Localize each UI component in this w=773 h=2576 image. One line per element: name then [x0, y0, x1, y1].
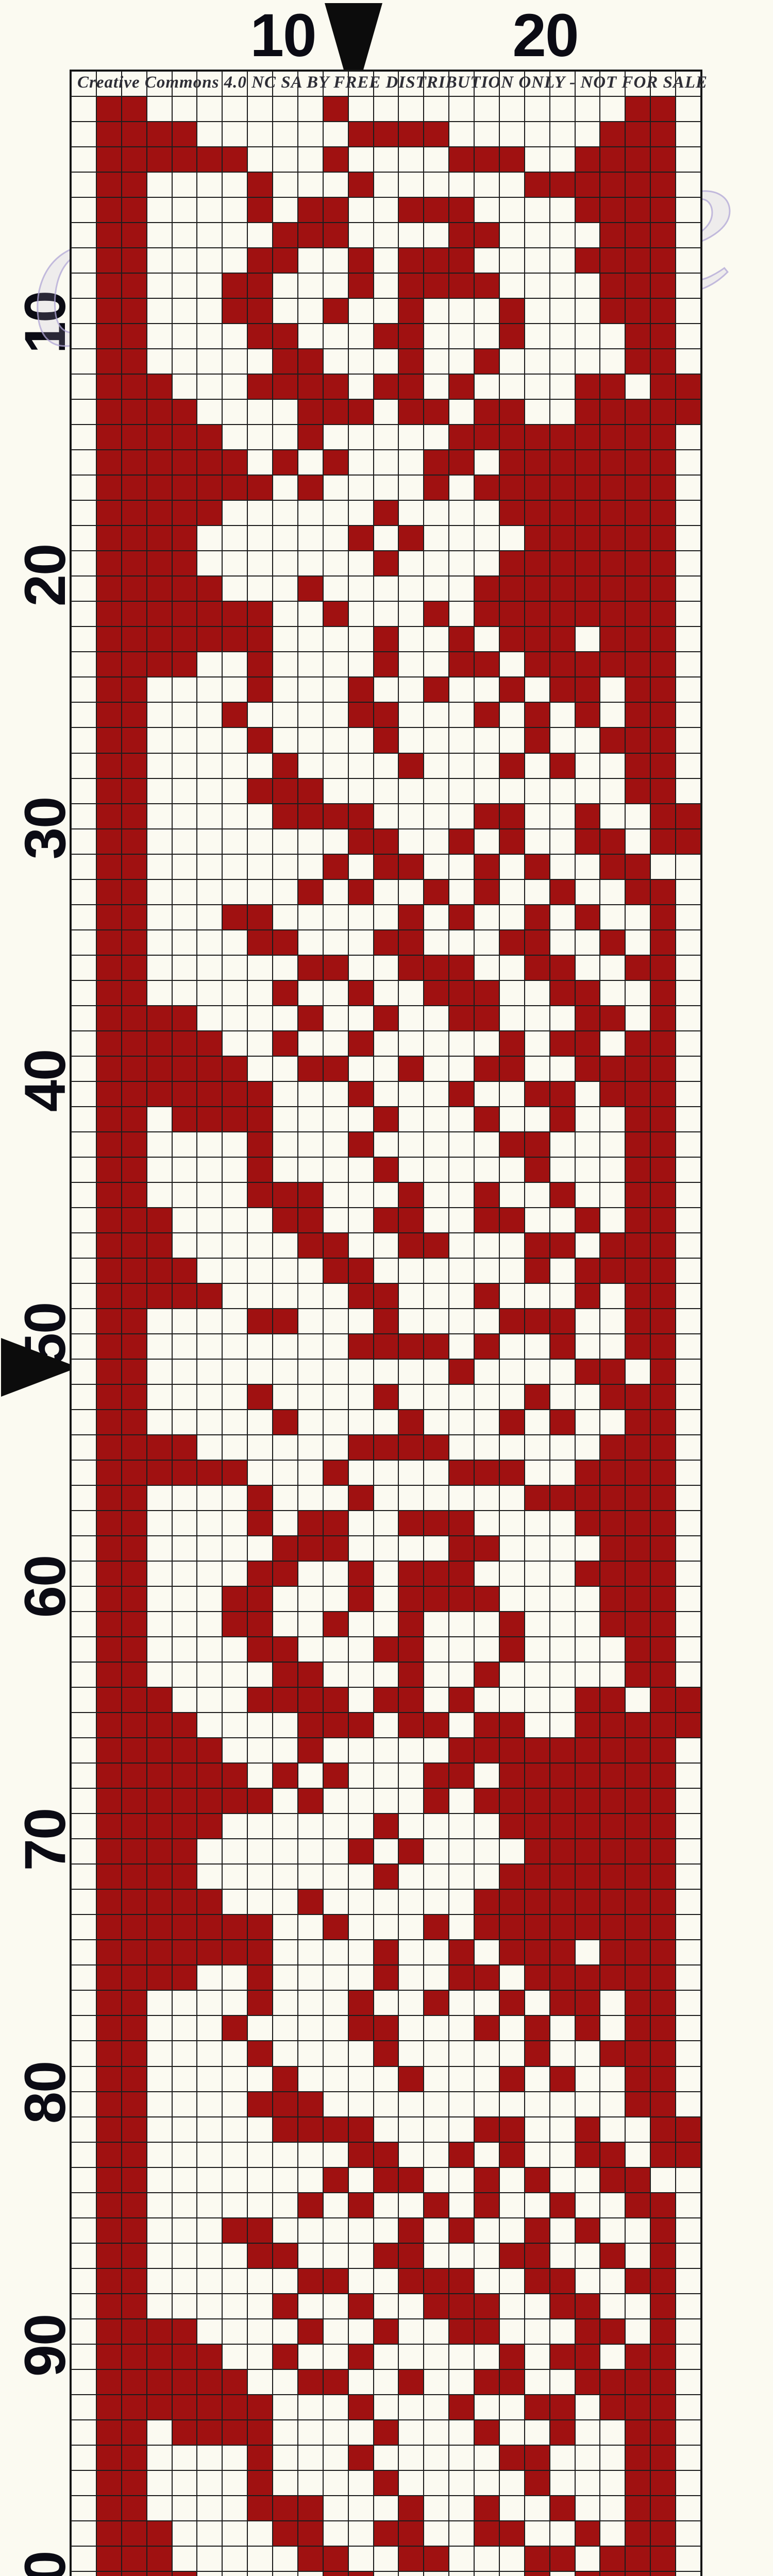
stitch-cell-r17-c14 — [398, 475, 424, 500]
stitch-cell-r86-c21 — [575, 2218, 600, 2243]
stitch-cell-r78-c17 — [474, 2015, 499, 2041]
stitch-cell-r98-c9 — [273, 2521, 298, 2546]
stitch-cell-r86-c17 — [474, 2218, 499, 2243]
stitch-cell-r100-c21 — [575, 2571, 600, 2576]
stitch-cell-r40-c3 — [122, 1056, 147, 1081]
stitch-cell-r37-c15 — [424, 980, 449, 1006]
stitch-cell-r89-c3 — [122, 2294, 147, 2319]
stitch-cell-r65-c20 — [550, 1687, 575, 1713]
stitch-cell-r61-c10 — [298, 1586, 323, 1612]
stitch-cell-r27-c19 — [525, 727, 550, 753]
stitch-cell-r20-c1 — [71, 551, 96, 576]
stitch-cell-r34-c19 — [525, 905, 550, 930]
stitch-cell-r10-c5 — [172, 298, 197, 324]
stitch-cell-r74-c18 — [499, 1914, 525, 1940]
stitch-cell-r19-c23 — [625, 526, 650, 551]
stitch-cell-r54-c21 — [575, 1410, 600, 1435]
stitch-cell-r44-c10 — [298, 1157, 323, 1182]
stitch-cell-r70-c15 — [424, 1814, 449, 1839]
stitch-cell-r21-c1 — [71, 576, 96, 601]
stitch-cell-r15-c2 — [96, 425, 122, 450]
stitch-cell-r96-c3 — [122, 2470, 147, 2496]
stitch-cell-r61-c5 — [172, 1586, 197, 1612]
stitch-cell-r97-c11 — [323, 2496, 348, 2521]
stitch-cell-r90-c6 — [197, 2319, 222, 2344]
stitch-cell-r55-c23 — [625, 1435, 650, 1460]
stitch-cell-r81-c24 — [650, 2092, 676, 2117]
stitch-cell-r4-c16 — [449, 147, 474, 172]
stitch-cell-r59-c10 — [298, 1536, 323, 1561]
stitch-cell-r26-c22 — [600, 702, 625, 727]
stitch-cell-r34-c5 — [172, 905, 197, 930]
stitch-cell-r39-c20 — [550, 1031, 575, 1056]
stitch-cell-r29-c14 — [398, 778, 424, 804]
stitch-cell-r70-c8 — [247, 1814, 273, 1839]
stitch-cell-r86-c8 — [247, 2218, 273, 2243]
stitch-cell-r65-c7 — [222, 1687, 247, 1713]
stitch-cell-r72-c1 — [71, 1864, 96, 1889]
stitch-cell-r66-c8 — [247, 1713, 273, 1738]
stitch-cell-r25-c21 — [575, 677, 600, 702]
stitch-cell-r43-c20 — [550, 1132, 575, 1157]
stitch-cell-r32-c22 — [600, 854, 625, 879]
stitch-cell-r22-c3 — [122, 601, 147, 626]
stitch-cell-r8-c3 — [122, 248, 147, 273]
stitch-cell-r42-c10 — [298, 1107, 323, 1132]
stitch-cell-r80-c2 — [96, 2066, 122, 2092]
stitch-cell-r21-c4 — [147, 576, 172, 601]
stitch-cell-r23-c1 — [71, 626, 96, 652]
stitch-cell-r34-c23 — [625, 905, 650, 930]
stitch-cell-r29-c2 — [96, 778, 122, 804]
stitch-cell-r14-c5 — [172, 399, 197, 425]
stitch-cell-r87-c9 — [273, 2243, 298, 2268]
stitch-cell-r43-c17 — [474, 1132, 499, 1157]
stitch-cell-r68-c7 — [222, 1763, 247, 1788]
stitch-cell-r11-c18 — [499, 324, 525, 349]
stitch-cell-r41-c23 — [625, 1081, 650, 1107]
stitch-cell-r88-c1 — [71, 2268, 96, 2294]
stitch-cell-r15-c5 — [172, 425, 197, 450]
stitch-cell-r94-c12 — [348, 2420, 374, 2445]
stitch-cell-r43-c18 — [499, 1132, 525, 1157]
stitch-cell-r19-c9 — [273, 526, 298, 551]
stitch-cell-r68-c2 — [96, 1763, 122, 1788]
stitch-cell-r35-c18 — [499, 930, 525, 955]
stitch-cell-r66-c2 — [96, 1713, 122, 1738]
stitch-cell-r5-c15 — [424, 172, 449, 197]
stitch-cell-r37-c5 — [172, 980, 197, 1006]
stitch-cell-r96-c19 — [525, 2470, 550, 2496]
stitch-cell-r84-c17 — [474, 2167, 499, 2193]
stitch-cell-r83-c21 — [575, 2142, 600, 2167]
stitch-cell-r56-c18 — [499, 1460, 525, 1485]
stitch-cell-r92-c18 — [499, 2369, 525, 2395]
stitch-cell-r17-c11 — [323, 475, 348, 500]
stitch-cell-r27-c3 — [122, 727, 147, 753]
stitch-cell-r67-c7 — [222, 1738, 247, 1763]
stitch-cell-r92-c1 — [71, 2369, 96, 2395]
stitch-cell-r10-c24 — [650, 298, 676, 324]
stitch-cell-r63-c23 — [625, 1637, 650, 1662]
stitch-cell-r69-c14 — [398, 1788, 424, 1814]
stitch-cell-r76-c21 — [575, 1965, 600, 1990]
stitch-cell-r47-c23 — [625, 1233, 650, 1258]
stitch-cell-r59-c6 — [197, 1536, 222, 1561]
stitch-cell-r53-c1 — [71, 1384, 96, 1410]
stitch-cell-r72-c4 — [147, 1864, 172, 1889]
stitch-cell-r95-c2 — [96, 2445, 122, 2470]
stitch-cell-r85-c4 — [147, 2193, 172, 2218]
stitch-cell-r31-c4 — [147, 829, 172, 854]
stitch-cell-r66-c5 — [172, 1713, 197, 1738]
stitch-cell-r36-c7 — [222, 955, 247, 980]
stitch-cell-r35-c3 — [122, 930, 147, 955]
stitch-cell-r94-c19 — [525, 2420, 550, 2445]
stitch-cell-r79-c10 — [298, 2041, 323, 2066]
stitch-cell-r22-c2 — [96, 601, 122, 626]
stitch-cell-r85-c9 — [273, 2193, 298, 2218]
stitch-cell-r36-c11 — [323, 955, 348, 980]
stitch-cell-r35-c11 — [323, 930, 348, 955]
stitch-cell-r89-c24 — [650, 2294, 676, 2319]
stitch-cell-r17-c19 — [525, 475, 550, 500]
stitch-cell-r83-c13 — [374, 2142, 399, 2167]
stitch-cell-r65-c1 — [71, 1687, 96, 1713]
stitch-cell-r43-c24 — [650, 1132, 676, 1157]
stitch-cell-r75-c23 — [625, 1940, 650, 1965]
stitch-cell-r66-c21 — [575, 1713, 600, 1738]
stitch-cell-r11-c3 — [122, 324, 147, 349]
stitch-cell-r88-c24 — [650, 2268, 676, 2294]
stitch-cell-r70-c10 — [298, 1814, 323, 1839]
stitch-cell-r43-c9 — [273, 1132, 298, 1157]
stitch-cell-r70-c5 — [172, 1814, 197, 1839]
stitch-cell-r75-c13 — [374, 1940, 399, 1965]
stitch-cell-r99-c5 — [172, 2546, 197, 2571]
stitch-cell-r76-c17 — [474, 1965, 499, 1990]
stitch-cell-r16-c23 — [625, 450, 650, 475]
stitch-cell-r85-c24 — [650, 2193, 676, 2218]
stitch-cell-r18-c8 — [247, 500, 273, 526]
stitch-cell-r82-c22 — [600, 2117, 625, 2142]
stitch-cell-r64-c2 — [96, 1662, 122, 1687]
stitch-cell-r31-c7 — [222, 829, 247, 854]
stitch-cell-r70-c16 — [449, 1814, 474, 1839]
stitch-cell-r60-c8 — [247, 1561, 273, 1586]
stitch-cell-r8-c1 — [71, 248, 96, 273]
stitch-cell-r75-c11 — [323, 1940, 348, 1965]
stitch-cell-r47-c19 — [525, 1233, 550, 1258]
stitch-cell-r47-c11 — [323, 1233, 348, 1258]
stitch-cell-r69-c24 — [650, 1788, 676, 1814]
stitch-cell-r90-c14 — [398, 2319, 424, 2344]
stitch-cell-r84-c9 — [273, 2167, 298, 2193]
stitch-cell-r70-c6 — [197, 1814, 222, 1839]
stitch-cell-r27-c4 — [147, 727, 172, 753]
stitch-cell-r82-c11 — [323, 2117, 348, 2142]
stitch-cell-r20-c22 — [600, 551, 625, 576]
stitch-cell-r44-c23 — [625, 1157, 650, 1182]
stitch-cell-r12-c12 — [348, 349, 374, 374]
stitch-cell-r81-c11 — [323, 2092, 348, 2117]
stitch-cell-r63-c5 — [172, 1637, 197, 1662]
stitch-cell-r45-c20 — [550, 1182, 575, 1208]
stitch-cell-r92-c16 — [449, 2369, 474, 2395]
stitch-cell-r39-c18 — [499, 1031, 525, 1056]
stitch-cell-r7-c4 — [147, 223, 172, 248]
stitch-cell-r86-c12 — [348, 2218, 374, 2243]
stitch-cell-r90-c24 — [650, 2319, 676, 2344]
stitch-cell-r19-c13 — [374, 526, 399, 551]
stitch-cell-r50-c25 — [676, 1309, 701, 1334]
stitch-cell-r63-c22 — [600, 1637, 625, 1662]
stitch-cell-r6-c1 — [71, 197, 96, 223]
stitch-cell-r56-c9 — [273, 1460, 298, 1485]
stitch-cell-r14-c14 — [398, 399, 424, 425]
stitch-cell-r13-c3 — [122, 374, 147, 399]
stitch-cell-r96-c13 — [374, 2470, 399, 2496]
stitch-cell-r41-c5 — [172, 1081, 197, 1107]
stitch-cell-r30-c19 — [525, 804, 550, 829]
stitch-cell-r68-c1 — [71, 1763, 96, 1788]
stitch-cell-r84-c14 — [398, 2167, 424, 2193]
stitch-cell-r9-c1 — [71, 273, 96, 298]
stitch-cell-r50-c14 — [398, 1309, 424, 1334]
stitch-cell-r31-c11 — [323, 829, 348, 854]
stitch-cell-r70-c24 — [650, 1814, 676, 1839]
stitch-cell-r9-c4 — [147, 273, 172, 298]
stitch-cell-r71-c16 — [449, 1839, 474, 1864]
stitch-cell-r62-c15 — [424, 1612, 449, 1637]
stitch-cell-r72-c16 — [449, 1864, 474, 1889]
stitch-cell-r40-c17 — [474, 1056, 499, 1081]
stitch-cell-r46-c25 — [676, 1208, 701, 1233]
stitch-cell-r8-c23 — [625, 248, 650, 273]
stitch-cell-r55-c21 — [575, 1435, 600, 1460]
stitch-cell-r75-c2 — [96, 1940, 122, 1965]
stitch-cell-r84-c19 — [525, 2167, 550, 2193]
stitch-cell-r85-c23 — [625, 2193, 650, 2218]
stitch-cell-r41-c24 — [650, 1081, 676, 1107]
stitch-cell-r76-c22 — [600, 1965, 625, 1990]
stitch-cell-r22-c9 — [273, 601, 298, 626]
stitch-cell-r20-c17 — [474, 551, 499, 576]
stitch-cell-r58-c9 — [273, 1511, 298, 1536]
stitch-cell-r94-c23 — [625, 2420, 650, 2445]
stitch-cell-r18-c12 — [348, 500, 374, 526]
stitch-cell-r6-c8 — [247, 197, 273, 223]
stitch-cell-r10-c23 — [625, 298, 650, 324]
stitch-cell-r79-c22 — [600, 2041, 625, 2066]
stitch-cell-r33-c4 — [147, 879, 172, 905]
stitch-cell-r30-c13 — [374, 804, 399, 829]
stitch-cell-r43-c14 — [398, 1132, 424, 1157]
stitch-cell-r47-c15 — [424, 1233, 449, 1258]
stitch-cell-r42-c20 — [550, 1107, 575, 1132]
stitch-cell-r51-c2 — [96, 1334, 122, 1359]
stitch-cell-r87-c8 — [247, 2243, 273, 2268]
stitch-cell-r88-c20 — [550, 2268, 575, 2294]
stitch-cell-r80-c21 — [575, 2066, 600, 2092]
stitch-cell-r92-c5 — [172, 2369, 197, 2395]
stitch-cell-r27-c15 — [424, 727, 449, 753]
stitch-cell-r12-c18 — [499, 349, 525, 374]
stitch-cell-r8-c16 — [449, 248, 474, 273]
stitch-cell-r97-c14 — [398, 2496, 424, 2521]
stitch-cell-r45-c22 — [600, 1182, 625, 1208]
stitch-cell-r25-c9 — [273, 677, 298, 702]
stitch-cell-r39-c12 — [348, 1031, 374, 1056]
stitch-cell-r83-c12 — [348, 2142, 374, 2167]
stitch-cell-r87-c6 — [197, 2243, 222, 2268]
stitch-cell-r29-c10 — [298, 778, 323, 804]
stitch-cell-r37-c7 — [222, 980, 247, 1006]
stitch-cell-r6-c25 — [676, 197, 701, 223]
stitch-cell-r76-c25 — [676, 1965, 701, 1990]
stitch-cell-r23-c10 — [298, 626, 323, 652]
stitch-cell-r64-c10 — [298, 1662, 323, 1687]
stitch-cell-r35-c25 — [676, 930, 701, 955]
stitch-cell-r22-c5 — [172, 601, 197, 626]
stitch-cell-r94-c7 — [222, 2420, 247, 2445]
stitch-cell-r67-c9 — [273, 1738, 298, 1763]
stitch-cell-r80-c6 — [197, 2066, 222, 2092]
stitch-cell-r97-c24 — [650, 2496, 676, 2521]
stitch-cell-r45-c24 — [650, 1182, 676, 1208]
stitch-cell-r86-c13 — [374, 2218, 399, 2243]
stitch-cell-r48-c17 — [474, 1258, 499, 1283]
stitch-cell-r30-c17 — [474, 804, 499, 829]
stitch-cell-r24-c25 — [676, 652, 701, 677]
stitch-cell-r94-c21 — [575, 2420, 600, 2445]
stitch-cell-r60-c1 — [71, 1561, 96, 1586]
stitch-cell-r53-c9 — [273, 1384, 298, 1410]
stitch-cell-r93-c16 — [449, 2395, 474, 2420]
stitch-cell-r37-c14 — [398, 980, 424, 1006]
stitch-cell-r8-c14 — [398, 248, 424, 273]
stitch-cell-r5-c12 — [348, 172, 374, 197]
stitch-cell-r5-c16 — [449, 172, 474, 197]
stitch-cell-r73-c13 — [374, 1889, 399, 1914]
stitch-cell-r74-c16 — [449, 1914, 474, 1940]
stitch-cell-r70-c21 — [575, 1814, 600, 1839]
stitch-cell-r49-c9 — [273, 1283, 298, 1309]
stitch-cell-r3-c3 — [122, 122, 147, 147]
stitch-cell-r44-c7 — [222, 1157, 247, 1182]
stitch-cell-r22-c24 — [650, 601, 676, 626]
stitch-cell-r32-c24 — [650, 854, 676, 879]
stitch-cell-r15-c20 — [550, 425, 575, 450]
stitch-cell-r31-c22 — [600, 829, 625, 854]
stitch-cell-r33-c17 — [474, 879, 499, 905]
stitch-cell-r50-c11 — [323, 1309, 348, 1334]
stitch-cell-r2-c11 — [323, 96, 348, 122]
stitch-cell-r14-c12 — [348, 399, 374, 425]
stitch-cell-r87-c11 — [323, 2243, 348, 2268]
stitch-cell-r31-c20 — [550, 829, 575, 854]
stitch-cell-r28-c7 — [222, 753, 247, 778]
stitch-cell-r59-c14 — [398, 1536, 424, 1561]
stitch-cell-r60-c16 — [449, 1561, 474, 1586]
stitch-cell-r5-c25 — [676, 172, 701, 197]
stitch-cell-r14-c9 — [273, 399, 298, 425]
stitch-cell-r37-c23 — [625, 980, 650, 1006]
stitch-cell-r20-c21 — [575, 551, 600, 576]
stitch-cell-r64-c5 — [172, 1662, 197, 1687]
stitch-cell-r24-c6 — [197, 652, 222, 677]
stitch-cell-r40-c20 — [550, 1056, 575, 1081]
stitch-cell-r50-c23 — [625, 1309, 650, 1334]
stitch-cell-r71-c4 — [147, 1839, 172, 1864]
stitch-cell-r69-c1 — [71, 1788, 96, 1814]
stitch-cell-r43-c10 — [298, 1132, 323, 1157]
stitch-cell-r7-c5 — [172, 223, 197, 248]
stitch-cell-r11-c14 — [398, 324, 424, 349]
stitch-cell-r92-c19 — [525, 2369, 550, 2395]
stitch-cell-r49-c12 — [348, 1283, 374, 1309]
stitch-cell-r23-c15 — [424, 626, 449, 652]
stitch-cell-r81-c15 — [424, 2092, 449, 2117]
stitch-cell-r50-c3 — [122, 1309, 147, 1334]
stitch-cell-r14-c24 — [650, 399, 676, 425]
stitch-cell-r27-c9 — [273, 727, 298, 753]
stitch-cell-r44-c19 — [525, 1157, 550, 1182]
stitch-cell-r10-c14 — [398, 298, 424, 324]
stitch-cell-r2-c21 — [575, 96, 600, 122]
stitch-cell-r30-c25 — [676, 804, 701, 829]
stitch-cell-r32-c20 — [550, 854, 575, 879]
stitch-cell-r89-c25 — [676, 2294, 701, 2319]
stitch-cell-r97-c10 — [298, 2496, 323, 2521]
stitch-cell-r77-c25 — [676, 1990, 701, 2015]
stitch-cell-r79-c3 — [122, 2041, 147, 2066]
stitch-cell-r98-c6 — [197, 2521, 222, 2546]
stitch-cell-r72-c18 — [499, 1864, 525, 1889]
stitch-cell-r99-c16 — [449, 2546, 474, 2571]
stitch-cell-r88-c8 — [247, 2268, 273, 2294]
stitch-cell-r84-c3 — [122, 2167, 147, 2193]
stitch-cell-r43-c22 — [600, 1132, 625, 1157]
stitch-cell-r52-c6 — [197, 1359, 222, 1384]
stitch-cell-r30-c21 — [575, 804, 600, 829]
stitch-cell-r71-c2 — [96, 1839, 122, 1864]
stitch-cell-r49-c20 — [550, 1283, 575, 1309]
stitch-cell-r33-c15 — [424, 879, 449, 905]
stitch-cell-r78-c7 — [222, 2015, 247, 2041]
stitch-cell-r53-c16 — [449, 1384, 474, 1410]
stitch-cell-r57-c7 — [222, 1485, 247, 1511]
stitch-cell-r31-c23 — [625, 829, 650, 854]
stitch-cell-r91-c23 — [625, 2344, 650, 2369]
stitch-cell-r95-c4 — [147, 2445, 172, 2470]
stitch-cell-r25-c10 — [298, 677, 323, 702]
stitch-cell-r63-c7 — [222, 1637, 247, 1662]
stitch-cell-r31-c17 — [474, 829, 499, 854]
stitch-cell-r47-c3 — [122, 1233, 147, 1258]
stitch-cell-r5-c6 — [197, 172, 222, 197]
stitch-cell-r54-c12 — [348, 1410, 374, 1435]
stitch-cell-r41-c18 — [499, 1081, 525, 1107]
stitch-cell-r37-c1 — [71, 980, 96, 1006]
stitch-cell-r63-c2 — [96, 1637, 122, 1662]
stitch-cell-r23-c12 — [348, 626, 374, 652]
stitch-cell-r67-c23 — [625, 1738, 650, 1763]
stitch-cell-r9-c14 — [398, 273, 424, 298]
stitch-cell-r28-c4 — [147, 753, 172, 778]
stitch-cell-r34-c16 — [449, 905, 474, 930]
stitch-cell-r51-c13 — [374, 1334, 399, 1359]
